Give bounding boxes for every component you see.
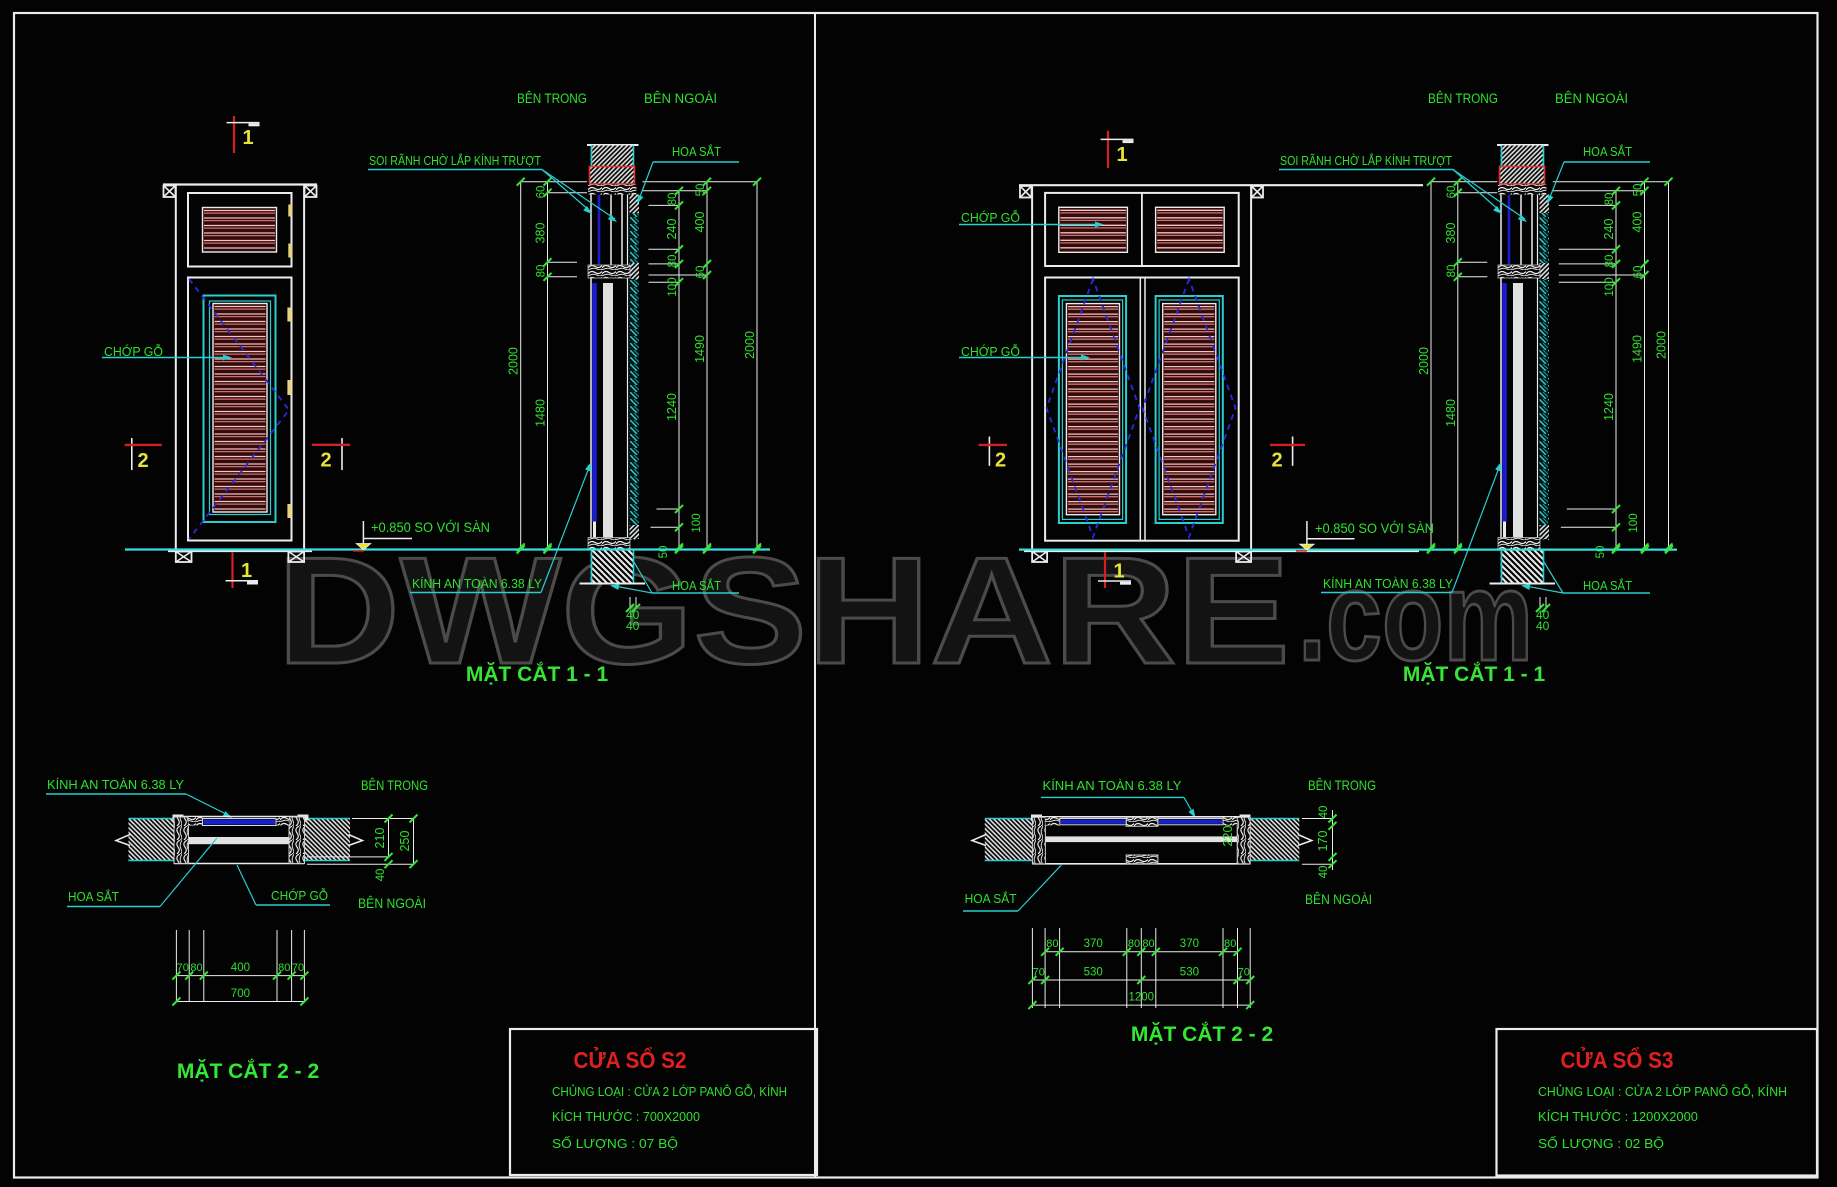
svg-text:100: 100 (667, 277, 679, 296)
svg-text:530: 530 (1180, 967, 1199, 979)
svg-text:MẶT CẮT 1 - 1: MẶT CẮT 1 - 1 (1403, 662, 1546, 686)
svg-text:SỐ LƯỢNG : 02 BỘ: SỐ LƯỢNG : 02 BỘ (1538, 1136, 1664, 1151)
svg-text:1490: 1490 (1631, 335, 1645, 363)
svg-text:2000: 2000 (1417, 347, 1431, 375)
svg-text:250: 250 (398, 831, 412, 852)
svg-text:60: 60 (536, 186, 548, 199)
svg-text:50: 50 (1633, 184, 1645, 197)
svg-text:BÊN TRONG: BÊN TRONG (361, 778, 428, 793)
svg-text:HOA SẮT: HOA SẮT (68, 889, 119, 904)
svg-text:380: 380 (1444, 223, 1458, 244)
svg-text:KÍNH AN TOÀN 6.38 LY: KÍNH AN TOÀN 6.38 LY (412, 576, 542, 591)
svg-text:CHỦNG LOẠI : CỬA 2 LỚP PANÔ GỖ: CHỦNG LOẠI : CỬA 2 LỚP PANÔ GỖ, KÍNH (552, 1084, 787, 1099)
svg-text:KÍCH THƯỚC : 1200X2000: KÍCH THƯỚC : 1200X2000 (1538, 1109, 1698, 1124)
svg-text:60: 60 (1446, 186, 1458, 199)
svg-text:CHỚP GỖ: CHỚP GỖ (961, 344, 1020, 359)
svg-text:SOI RÃNH CHỜ LẮP KÍNH TRƯỢT: SOI RÃNH CHỜ LẮP KÍNH TRƯỢT (369, 153, 541, 168)
svg-text:240: 240 (665, 219, 679, 240)
svg-text:SOI RÃNH CHỜ LẮP KÍNH TRƯỢT: SOI RÃNH CHỜ LẮP KÍNH TRƯỢT (1280, 153, 1452, 168)
svg-text:SỐ LƯỢNG : 07 BỘ: SỐ LƯỢNG : 07 BỘ (552, 1136, 678, 1151)
svg-text:BÊN TRONG: BÊN TRONG (1428, 91, 1498, 106)
svg-text:80: 80 (1046, 938, 1058, 950)
svg-text:BÊN NGOÀI: BÊN NGOÀI (644, 91, 717, 106)
svg-text:CHỦNG LOẠI : CỬA 2 LỚP PANÔ GỖ: CHỦNG LOẠI : CỬA 2 LỚP PANÔ GỖ, KÍNH (1538, 1084, 1787, 1099)
svg-text:70: 70 (177, 962, 189, 974)
svg-text:170: 170 (1316, 831, 1330, 852)
svg-text:KÍNH AN TOÀN 6.38 LY: KÍNH AN TOÀN 6.38 LY (1043, 778, 1182, 793)
svg-text:HOA SẮT: HOA SẮT (672, 578, 721, 593)
svg-text:70: 70 (292, 962, 304, 974)
svg-text:2: 2 (995, 450, 1006, 472)
svg-text:60: 60 (695, 266, 707, 279)
svg-text:1480: 1480 (1444, 399, 1458, 427)
svg-text:CHỚP GỖ: CHỚP GỖ (104, 344, 163, 359)
svg-text:1480: 1480 (534, 399, 548, 427)
svg-text:1: 1 (1114, 561, 1125, 583)
svg-text:1: 1 (1117, 144, 1128, 166)
svg-text:BÊN NGOÀI: BÊN NGOÀI (1555, 91, 1628, 106)
svg-text:1490: 1490 (693, 335, 707, 363)
svg-text:80: 80 (1142, 938, 1154, 950)
svg-text:80: 80 (667, 193, 679, 206)
svg-text:400: 400 (1631, 212, 1645, 233)
svg-text:700: 700 (231, 988, 250, 1000)
svg-text:220: 220 (1221, 826, 1235, 847)
svg-text:CỬA SỔ S2: CỬA SỔ S2 (574, 1045, 687, 1073)
svg-text:80: 80 (1604, 193, 1616, 206)
svg-text:1240: 1240 (1602, 393, 1616, 421)
svg-text:KÍNH AN TOÀN 6.38 LY: KÍNH AN TOÀN 6.38 LY (47, 777, 184, 792)
svg-text:380: 380 (534, 223, 548, 244)
svg-text:40: 40 (626, 619, 640, 633)
svg-text:MẶT CẮT 2 - 2: MẶT CẮT 2 - 2 (1131, 1022, 1273, 1046)
svg-text:HOA SẮT: HOA SẮT (672, 144, 721, 159)
svg-text:70: 70 (1238, 967, 1250, 979)
svg-text:80: 80 (1128, 938, 1140, 950)
svg-text:50: 50 (695, 184, 707, 197)
svg-text:40: 40 (375, 869, 387, 882)
svg-text:CHỚP GỖ: CHỚP GỖ (271, 888, 328, 903)
svg-text:2000: 2000 (1655, 331, 1669, 359)
svg-text:100: 100 (1628, 513, 1640, 532)
svg-text:2: 2 (321, 450, 332, 472)
svg-text:80: 80 (190, 962, 202, 974)
svg-text:400: 400 (693, 212, 707, 233)
svg-text:BÊN NGOÀI: BÊN NGOÀI (1305, 892, 1372, 907)
svg-text:BÊN NGOÀI: BÊN NGOÀI (358, 896, 426, 911)
svg-text:40: 40 (1318, 806, 1330, 819)
svg-text:80: 80 (667, 255, 679, 268)
svg-text:MẶT CẮT 2 - 2: MẶT CẮT 2 - 2 (177, 1059, 319, 1083)
svg-text:40: 40 (1536, 619, 1550, 633)
svg-text:KÍCH THƯỚC : 700X2000: KÍCH THƯỚC : 700X2000 (552, 1109, 700, 1124)
svg-text:1: 1 (241, 560, 252, 582)
svg-text:370: 370 (1180, 938, 1199, 950)
svg-text:+0.850 SO VỚI SÀN: +0.850 SO VỚI SÀN (1315, 521, 1434, 536)
svg-text:CỬA SỔ S3: CỬA SỔ S3 (1561, 1045, 1674, 1073)
svg-text:80: 80 (536, 265, 548, 278)
svg-text:+0.850 SO VỚI SÀN: +0.850 SO VỚI SÀN (371, 520, 490, 535)
svg-text:50: 50 (1595, 546, 1607, 559)
svg-text:50: 50 (658, 546, 670, 559)
svg-text:80: 80 (1446, 265, 1458, 278)
svg-text:80: 80 (1604, 255, 1616, 268)
svg-text:100: 100 (691, 513, 703, 532)
svg-text:60: 60 (1633, 266, 1645, 279)
svg-text:2000: 2000 (507, 347, 521, 375)
svg-text:HOA SẮT: HOA SẮT (1583, 578, 1632, 593)
svg-text:40: 40 (1318, 866, 1330, 879)
svg-text:70: 70 (1033, 967, 1045, 979)
svg-text:HOA SẮT: HOA SẮT (965, 891, 1017, 906)
svg-text:2: 2 (1272, 450, 1283, 472)
svg-text:2: 2 (138, 450, 149, 472)
svg-text:240: 240 (1602, 219, 1616, 240)
svg-text:1: 1 (243, 127, 254, 149)
svg-text:2000: 2000 (743, 331, 757, 359)
svg-text:BÊN TRONG: BÊN TRONG (517, 91, 587, 106)
svg-text:BÊN TRONG: BÊN TRONG (1308, 778, 1376, 793)
svg-text:1200: 1200 (1129, 992, 1155, 1004)
svg-text:1240: 1240 (665, 393, 679, 421)
svg-text:80: 80 (278, 962, 290, 974)
svg-text:100: 100 (1604, 277, 1616, 296)
svg-text:370: 370 (1084, 938, 1103, 950)
svg-text:80: 80 (1224, 938, 1236, 950)
svg-text:530: 530 (1084, 967, 1103, 979)
svg-text:210: 210 (373, 828, 387, 849)
svg-text:400: 400 (231, 962, 250, 974)
svg-text:MẶT CẮT 1 - 1: MẶT CẮT 1 - 1 (466, 662, 609, 686)
svg-text:KÍNH AN TOÀN 6.38 LY: KÍNH AN TOÀN 6.38 LY (1323, 576, 1453, 591)
svg-text:CHỚP GỖ: CHỚP GỖ (961, 210, 1020, 225)
svg-text:HOA SẮT: HOA SẮT (1583, 144, 1632, 159)
